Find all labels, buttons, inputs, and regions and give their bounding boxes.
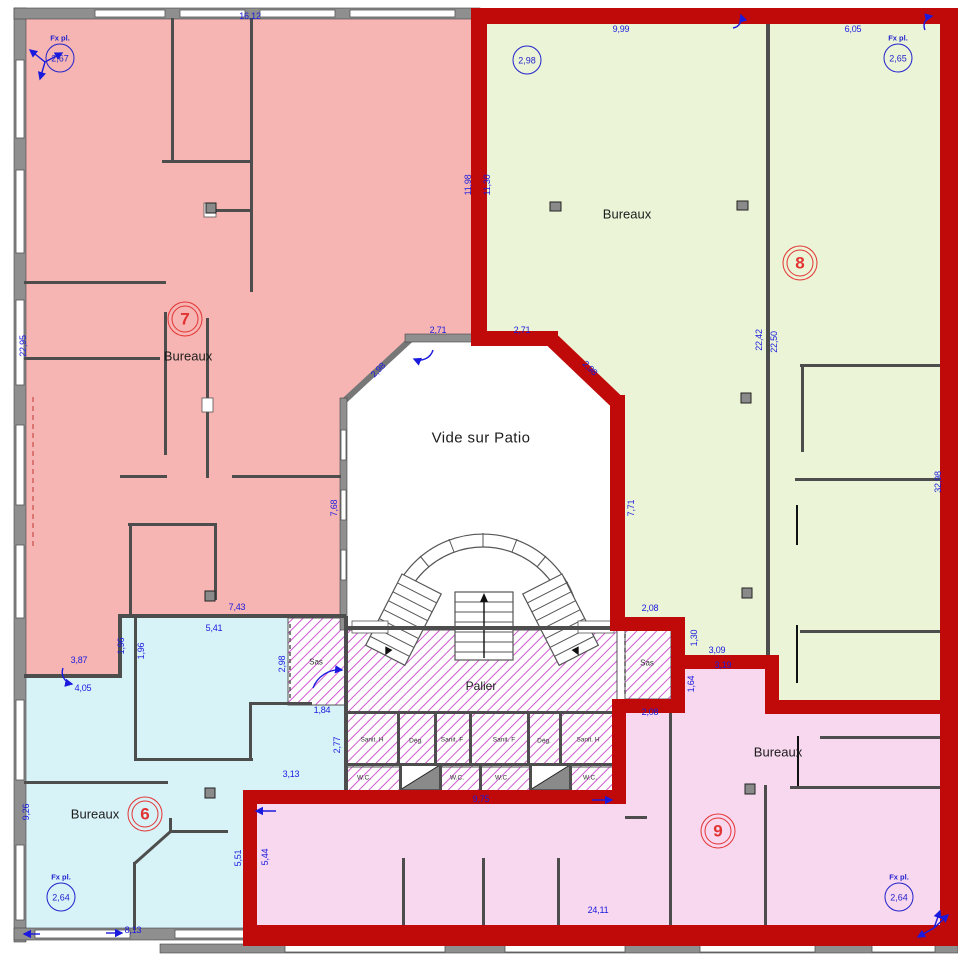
floor-plan-drawing [0,0,958,960]
sas-right-area [625,630,671,699]
floor-plan: 16,129,996,0511,9811,3022,9522,4222,5032… [0,0,958,960]
patio-void-area [346,340,615,630]
sas-left-area [288,618,346,705]
sanitary-row-area [346,713,617,767]
